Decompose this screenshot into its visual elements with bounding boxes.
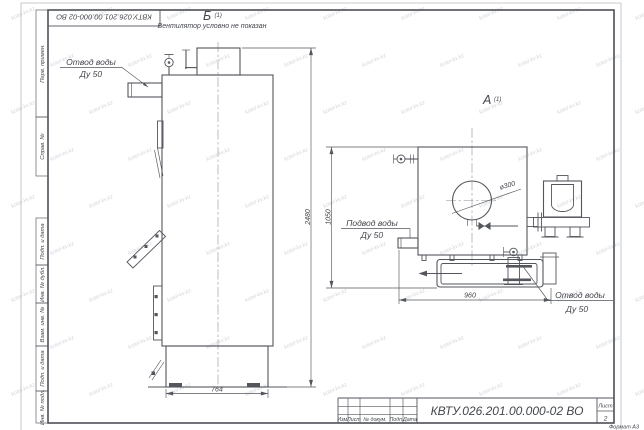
watermark-text: kotel-kv.kz (634, 100, 644, 116)
watermark-text: kotel-kv.kz (517, 241, 543, 257)
watermark-text: kotel-kv.kz (166, 6, 192, 22)
view-b-label: Б (203, 9, 211, 23)
drain-line-with-valve (468, 220, 519, 231)
dim-side-height-value: 1050 (326, 209, 333, 225)
margin-label-sprav-n: Справ. № (40, 133, 46, 159)
technical-drawing: kotel-kv.kzkotel-kv.kzkotel-kv.kzkotel-k… (0, 0, 644, 430)
watermark-text: kotel-kv.kz (361, 147, 387, 163)
label-inlet-line2: Ду 50 (360, 230, 383, 240)
titleblock-col-data: Дата (402, 417, 417, 423)
watermark-text: kotel-kv.kz (634, 288, 644, 304)
watermark-text: kotel-kv.kz (595, 147, 621, 163)
stamp-doc-number: КВТУ.026.201.00.000-02 ВО (56, 13, 152, 22)
label-inlet: Подвод воды Ду 50 (341, 218, 410, 240)
ash-tray (419, 260, 544, 288)
side-valve-icon (394, 155, 419, 164)
watermark-text: kotel-kv.kz (400, 194, 426, 210)
watermark-text: kotel-kv.kz (439, 147, 465, 163)
margin-label-vzam-inv: Взам. инв. № (40, 307, 46, 343)
titleblock-doc-number: КВТУ.026.201.00.000-02 ВО (431, 404, 584, 418)
titleblock-col-list: Лист (346, 417, 361, 423)
titleblock-col-podp: Подп. (389, 417, 403, 423)
label-inlet-line1: Подвод воды (346, 218, 398, 228)
watermark-text: kotel-kv.kz (439, 53, 465, 69)
watermark-text: kotel-kv.kz (400, 6, 426, 22)
paper-edges (21, 3, 621, 430)
water-inlet-stub (398, 238, 418, 248)
watermark-text: kotel-kv.kz (478, 288, 504, 304)
watermark-text: kotel-kv.kz (439, 241, 465, 257)
watermark-text: kotel-kv.kz (244, 288, 270, 304)
watermark-text: kotel-kv.kz (634, 6, 644, 22)
format-note: Формат А3 (609, 425, 640, 430)
watermark-text: kotel-kv.kz (595, 53, 621, 69)
margin-label-podp-data-1: Подп. и дата (40, 223, 46, 260)
drawing-sheet: kotel-kv.kzkotel-kv.kzkotel-kv.kzkotel-k… (0, 0, 644, 430)
view-b-index: (1) (215, 13, 222, 19)
watermark-text: kotel-kv.kz (478, 6, 504, 22)
watermark-text: kotel-kv.kz (10, 194, 36, 210)
watermark-text: kotel-kv.kz (205, 147, 231, 163)
watermark-text: kotel-kv.kz (595, 241, 621, 257)
margin-label-inv-podl: Инв. № подл. (40, 389, 46, 425)
watermark-text: kotel-kv.kz (322, 6, 348, 22)
watermark-text: kotel-kv.kz (283, 335, 309, 351)
watermark-text: kotel-kv.kz (361, 241, 387, 257)
watermark-text: kotel-kv.kz (478, 382, 504, 398)
label-outlet-bottom: Отвод воды Ду 50 (522, 265, 613, 314)
watermark-text: kotel-kv.kz (166, 194, 192, 210)
ash-door-handle (149, 360, 164, 380)
watermark-text: kotel-kv.kz (88, 100, 114, 116)
watermark-text: kotel-kv.kz (205, 241, 231, 257)
boiler-body-front (162, 75, 273, 346)
watermark-text: kotel-kv.kz (556, 100, 582, 116)
view-a-index: (1) (494, 97, 501, 103)
margin-column: Перв. примен. Справ. № Подп. и дата Инв.… (36, 10, 48, 425)
watermark-text: kotel-kv.kz (205, 53, 231, 69)
door-lower (154, 286, 163, 340)
watermark-text: kotel-kv.kz (166, 100, 192, 116)
watermark-text: kotel-kv.kz (244, 6, 270, 22)
watermark-text: kotel-kv.kz (88, 382, 114, 398)
view-a-label: А (482, 93, 491, 107)
watermark-text: kotel-kv.kz (244, 194, 270, 210)
dim-front-height-value: 2480 (305, 209, 312, 226)
watermark-text: kotel-kv.kz (400, 382, 426, 398)
dim-front-width-value: 764 (211, 387, 223, 394)
watermark-text: kotel-kv.kz (322, 100, 348, 116)
watermark-text: kotel-kv.kz (517, 335, 543, 351)
watermark-text: kotel-kv.kz (166, 288, 192, 304)
watermark-text: kotel-kv.kz (361, 53, 387, 69)
margin-label-podp-data-2: Подп. и дата (40, 350, 46, 387)
watermark-text: kotel-kv.kz (517, 53, 543, 69)
margin-label-inv-dubl: Инв. № дубл. (40, 266, 46, 302)
watermark-text: kotel-kv.kz (517, 147, 543, 163)
watermark-text: kotel-kv.kz (556, 194, 582, 210)
label-outlet-top-line1: Отвод воды (66, 57, 116, 67)
title-block: Изм. Лист № докум. Подп. Дата КВТУ.026.2… (337, 398, 640, 430)
watermark-text: kotel-kv.kz (127, 335, 153, 351)
watermark-text: kotel-kv.kz (10, 6, 36, 22)
watermark-text: kotel-kv.kz (556, 382, 582, 398)
safety-valve-icon (165, 55, 174, 76)
watermark-text: kotel-kv.kz (10, 288, 36, 304)
boiler-body-side (418, 147, 527, 255)
watermark-text: kotel-kv.kz (244, 100, 270, 116)
label-outlet-bottom-line1: Отвод воды (555, 290, 605, 300)
diameter-value: ø300 (499, 180, 516, 191)
watermark-text: kotel-kv.kz (10, 100, 36, 116)
watermark-text: kotel-kv.kz (556, 6, 582, 22)
watermark-text: kotel-kv.kz (322, 194, 348, 210)
watermark-text: kotel-kv.kz (10, 382, 36, 398)
watermark-text: kotel-kv.kz (205, 335, 231, 351)
titleblock-col-dokum: № докум. (363, 417, 386, 423)
titleblock-sheet-label: Лист (597, 404, 613, 410)
watermark-text: kotel-kv.kz (49, 335, 75, 351)
watermark-text: kotel-kv.kz (49, 241, 75, 257)
watermark-text: kotel-kv.kz (361, 335, 387, 351)
watermark-text: kotel-kv.kz (634, 194, 644, 210)
boiler-base (148, 346, 287, 387)
margin-label-perv-primen: Перв. примен. (40, 44, 46, 83)
label-outlet-top-line2: Ду 50 (79, 69, 102, 79)
watermark-text: kotel-kv.kz (400, 288, 426, 304)
watermark-text: kotel-kv.kz (283, 241, 309, 257)
label-diameter: ø300 (452, 180, 521, 213)
watermark-text: kotel-kv.kz (127, 53, 153, 69)
watermark-text: kotel-kv.kz (595, 335, 621, 351)
watermark-text: kotel-kv.kz (127, 147, 153, 163)
view-b-note: Вентилятор условно не показан (158, 23, 267, 30)
label-outlet-bottom-line2: Ду 50 (565, 304, 588, 314)
watermark-text: kotel-kv.kz (88, 288, 114, 304)
watermark-text: kotel-kv.kz (634, 382, 644, 398)
watermark-text: kotel-kv.kz (283, 147, 309, 163)
watermark-text: kotel-kv.kz (322, 288, 348, 304)
titleblock-sheet-number: 2 (603, 416, 608, 423)
dim-side-width-value: 960 (464, 293, 476, 300)
watermark-text: kotel-kv.kz (88, 194, 114, 210)
watermark-text: kotel-kv.kz (283, 53, 309, 69)
watermark-text: kotel-kv.kz (322, 382, 348, 398)
watermark-text: kotel-kv.kz (439, 335, 465, 351)
watermark-text: kotel-kv.kz (400, 100, 426, 116)
watermark-text: kotel-kv.kz (49, 147, 75, 163)
